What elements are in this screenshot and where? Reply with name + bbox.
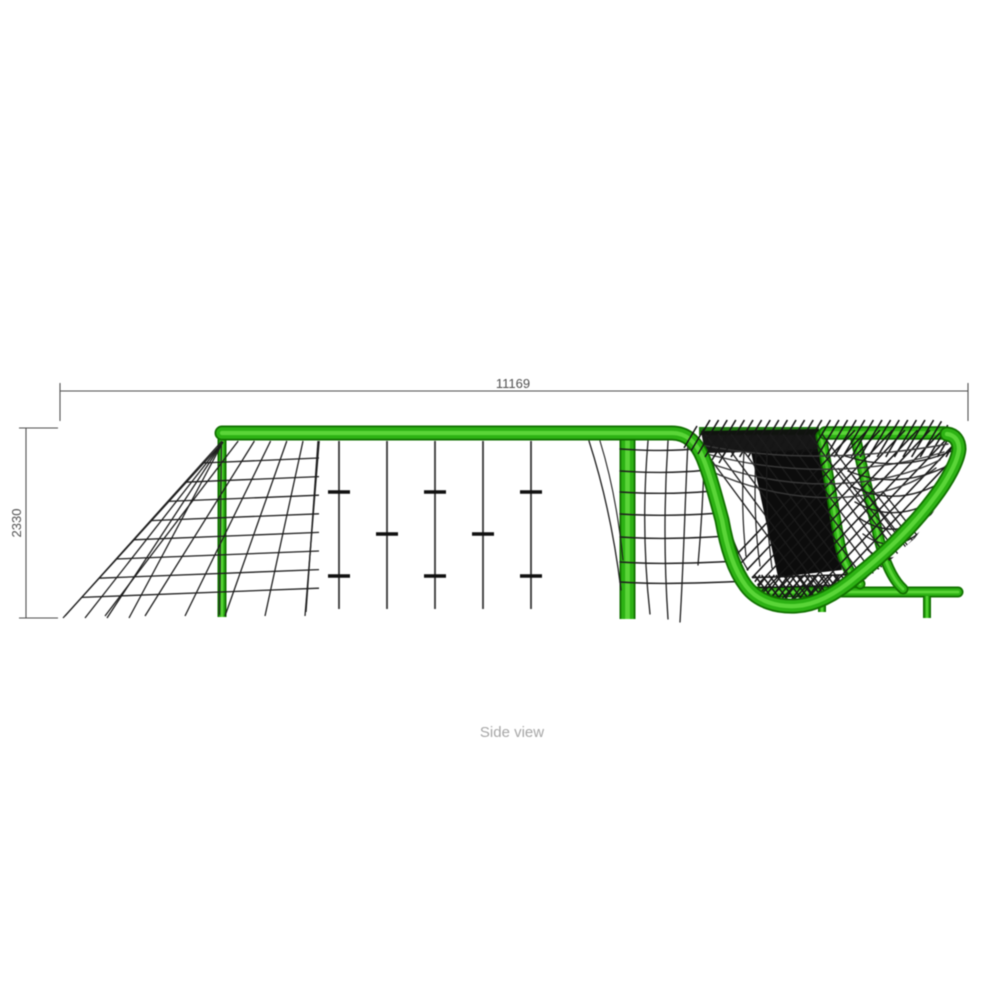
svg-text:11169: 11169 xyxy=(496,376,530,391)
svg-text:Side view: Side view xyxy=(480,724,544,741)
svg-text:2330: 2330 xyxy=(9,509,24,538)
